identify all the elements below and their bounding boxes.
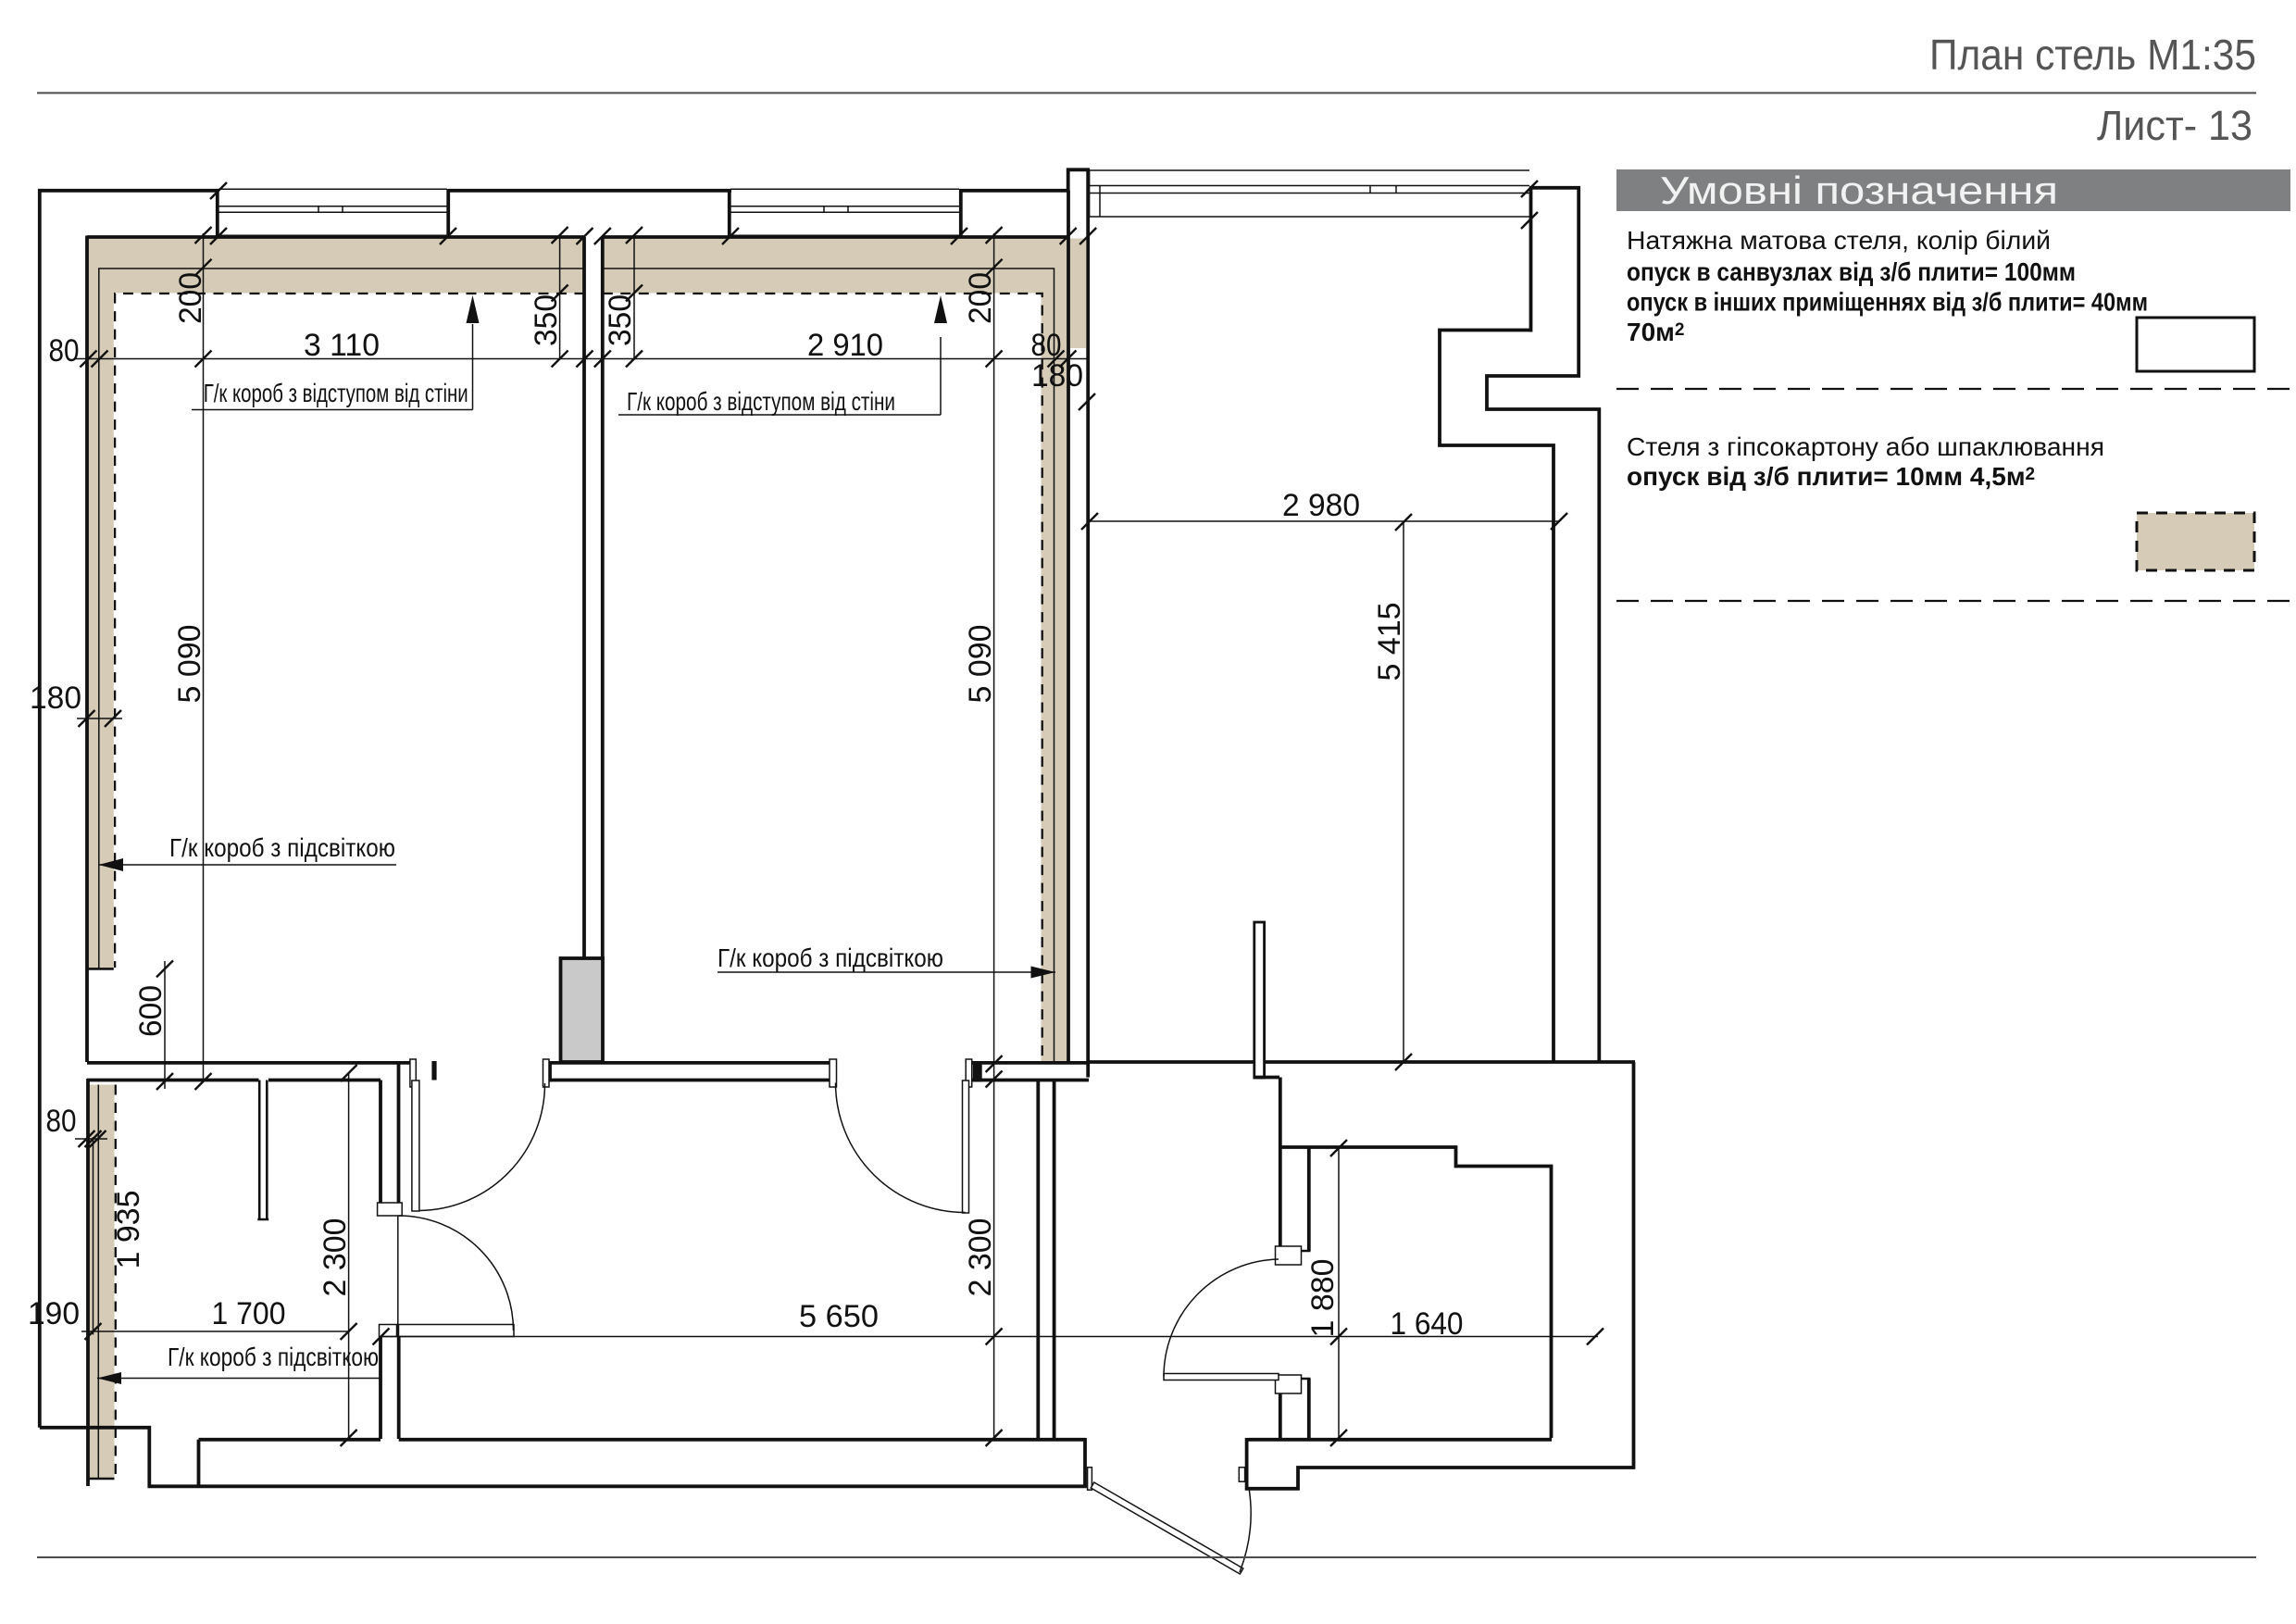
svg-text:180: 180 xyxy=(30,681,81,716)
svg-text:2 300: 2 300 xyxy=(963,1218,998,1297)
svg-text:5 650: 5 650 xyxy=(799,1299,879,1334)
svg-text:опуск від з/б плити= 10мм 4,5м: опуск від з/б плити= 10мм 4,5м2 xyxy=(1627,462,2035,491)
svg-text:План стель М1:35: План стель М1:35 xyxy=(1929,31,2256,79)
svg-text:80: 80 xyxy=(49,333,80,369)
svg-text:опуск в санвузлах від з/б плит: опуск в санвузлах від з/б плити= 100мм xyxy=(1627,257,2076,286)
svg-text:Умовні позначення: Умовні позначення xyxy=(1660,169,2058,212)
svg-text:200: 200 xyxy=(963,272,998,324)
svg-text:Г/к короб з підсвіткою: Г/к короб з підсвіткою xyxy=(168,1343,379,1371)
svg-text:5 090: 5 090 xyxy=(963,625,998,704)
svg-text:600: 600 xyxy=(133,985,168,1037)
svg-text:1 880: 1 880 xyxy=(1305,1259,1341,1338)
svg-text:350: 350 xyxy=(529,294,564,346)
svg-text:5 415: 5 415 xyxy=(1372,603,1407,681)
svg-text:1 700: 1 700 xyxy=(212,1296,286,1331)
svg-text:350: 350 xyxy=(603,294,638,346)
svg-text:Г/к короб з підсвіткою: Г/к короб з підсвіткою xyxy=(169,833,395,862)
svg-text:Г/к короб з відступом від стін: Г/к короб з відступом від стіни xyxy=(204,379,468,407)
svg-text:190: 190 xyxy=(28,1296,80,1331)
svg-text:Натяжна матова стеля, колір бі: Натяжна матова стеля, колір білий xyxy=(1627,226,2051,255)
svg-text:2 980: 2 980 xyxy=(1282,488,1360,523)
svg-text:Стеля з гіпсокартону або шпакл: Стеля з гіпсокартону або шпаклювання xyxy=(1627,432,2104,461)
svg-text:Лист- 13: Лист- 13 xyxy=(2097,102,2252,149)
svg-text:опуск в інших приміщеннях від: опуск в інших приміщеннях від з/б плити=… xyxy=(1627,288,2148,317)
svg-text:2 910: 2 910 xyxy=(807,328,883,363)
svg-text:2 300: 2 300 xyxy=(318,1218,353,1297)
svg-text:3 110: 3 110 xyxy=(304,328,380,363)
svg-text:5 090: 5 090 xyxy=(172,625,207,704)
svg-text:200: 200 xyxy=(173,272,208,324)
svg-text:Г/к короб з підсвіткою: Г/к короб з підсвіткою xyxy=(717,943,943,972)
svg-text:1 935: 1 935 xyxy=(111,1191,146,1269)
svg-text:Г/к короб з відступом від стін: Г/к короб з відступом від стіни xyxy=(627,387,895,416)
svg-text:180: 180 xyxy=(1031,358,1083,394)
svg-text:1 640: 1 640 xyxy=(1391,1306,1464,1342)
svg-text:80: 80 xyxy=(46,1104,77,1139)
